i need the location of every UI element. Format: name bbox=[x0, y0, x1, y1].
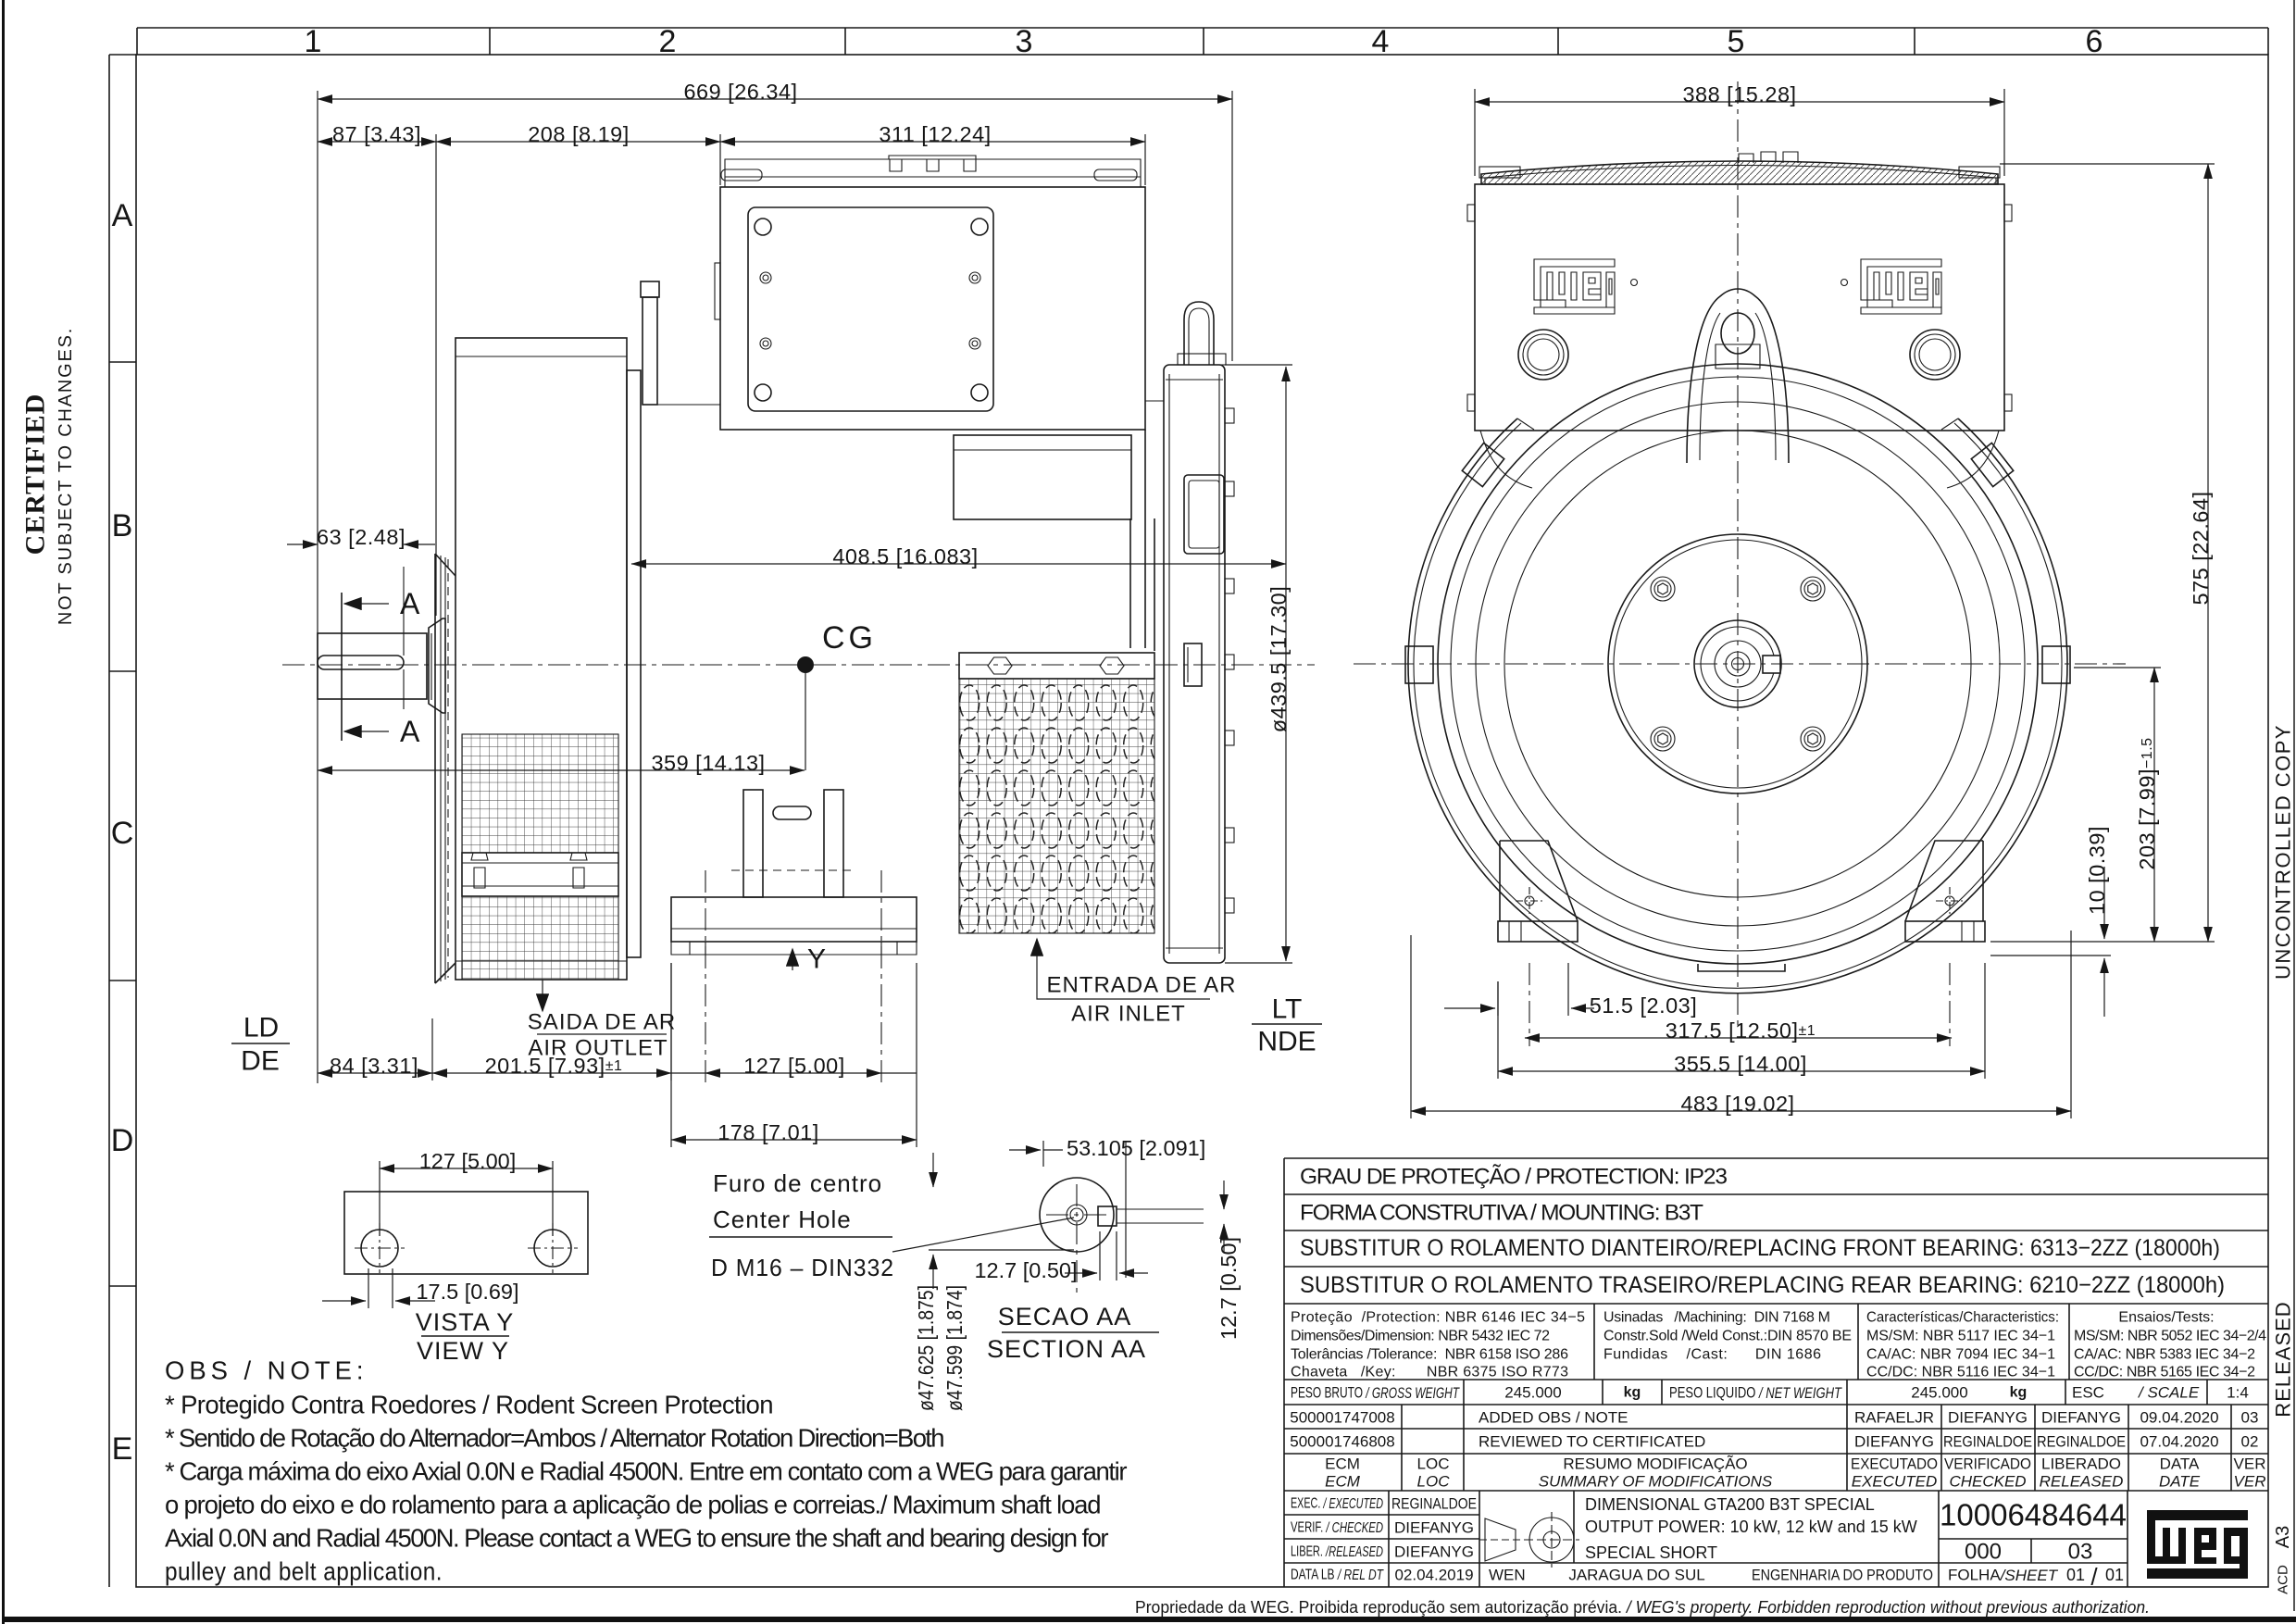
svg-text:A: A bbox=[400, 587, 420, 620]
svg-text:02: 02 bbox=[2241, 1433, 2259, 1451]
svg-text:MS/SM: NBR 5117 IEC 34−1: MS/SM: NBR 5117 IEC 34−1 bbox=[1866, 1329, 2055, 1344]
svg-text:REVIEWED TO CERTIFICATED: REVIEWED TO CERTIFICATED bbox=[1479, 1433, 1705, 1451]
svg-text:408.5 [16.083]: 408.5 [16.083] bbox=[832, 544, 978, 568]
svg-text:AIR INLET: AIR INLET bbox=[1071, 1002, 1186, 1027]
svg-text:Tolerâncias /Tolerance: NBR 6: Tolerâncias /Tolerance: NBR 6158 ISO 286 bbox=[1291, 1347, 1568, 1363]
svg-text:Ensaios/Tests:: Ensaios/Tests: bbox=[2118, 1310, 2214, 1326]
svg-text:355.5 [14.00]: 355.5 [14.00] bbox=[1674, 1052, 1807, 1076]
svg-text:84 [3.31]: 84 [3.31] bbox=[330, 1054, 418, 1078]
svg-text:87 [3.43]: 87 [3.43] bbox=[332, 122, 421, 146]
svg-text:WEN: WEN bbox=[1489, 1567, 1526, 1584]
svg-text:RELEASED: RELEASED bbox=[2272, 1301, 2295, 1417]
svg-text:02.04.2019: 02.04.2019 bbox=[1394, 1567, 1473, 1584]
svg-text:ø439.5 [17.30]: ø439.5 [17.30] bbox=[1267, 586, 1291, 733]
svg-text:669 [26.34]: 669 [26.34] bbox=[683, 80, 797, 104]
svg-text:Usinadas /Machining: DIN 71: Usinadas /Machining: DIN 7168 M bbox=[1603, 1310, 1830, 1326]
svg-text:03: 03 bbox=[2068, 1540, 2093, 1565]
svg-text:127 [5.00]: 127 [5.00] bbox=[743, 1054, 845, 1078]
svg-text:SECTION AA: SECTION AA bbox=[987, 1335, 1146, 1363]
svg-text:17.5 [0.69]: 17.5 [0.69] bbox=[416, 1280, 518, 1304]
svg-text:CA/AC: NBR 7094 IEC 34−1: CA/AC: NBR 7094 IEC 34−1 bbox=[1866, 1347, 2055, 1363]
svg-text:ø47.625 [1.875]: ø47.625 [1.875] bbox=[914, 1285, 938, 1411]
svg-text:ADDED OBS / NOTE: ADDED OBS / NOTE bbox=[1479, 1409, 1628, 1427]
svg-text:DE: DE bbox=[241, 1046, 280, 1077]
svg-text:Dimensões/Dimension: NBR 5432: Dimensões/Dimension: NBR 5432 IEC 72 bbox=[1291, 1329, 1550, 1344]
svg-text:CC/DC: NBR 5116 IEC 34−1: CC/DC: NBR 5116 IEC 34−1 bbox=[1866, 1365, 2055, 1380]
svg-text:LIBERADO: LIBERADO bbox=[2041, 1455, 2121, 1473]
svg-text:127 [5.00]: 127 [5.00] bbox=[419, 1149, 517, 1173]
svg-text:RESUMO MODIFICAÇÃO: RESUMO MODIFICAÇÃO bbox=[1563, 1455, 1747, 1473]
svg-text:Center Hole: Center Hole bbox=[713, 1206, 852, 1233]
svg-text:RAFAELJR: RAFAELJR bbox=[1854, 1409, 1934, 1427]
svg-text:MS/SM: NBR 5052 IEC 34−2/4: MS/SM: NBR 5052 IEC 34−2/4 bbox=[2074, 1329, 2266, 1344]
svg-text:LD: LD bbox=[243, 1013, 279, 1043]
svg-text:Y: Y bbox=[807, 944, 826, 975]
svg-text:51.5 [2.03]: 51.5 [2.03] bbox=[1590, 993, 1698, 1018]
svg-text:JARAGUA DO SUL: JARAGUA DO SUL bbox=[1568, 1567, 1704, 1584]
svg-text:201.5 [7.93]±1: 201.5 [7.93]±1 bbox=[485, 1054, 623, 1078]
svg-text:DIMENSIONAL GTA200 B3T SPECIAL: DIMENSIONAL GTA200 B3T SPECIAL bbox=[1585, 1495, 1875, 1514]
svg-text:VISTA Y: VISTA Y bbox=[416, 1308, 515, 1336]
svg-text:/: / bbox=[2090, 1563, 2098, 1591]
svg-text:CERTIFIED: CERTIFIED bbox=[20, 394, 51, 556]
svg-text:kg: kg bbox=[2010, 1385, 2028, 1401]
svg-text:FORMA CONSTRUTIVA / MOUNTING:: FORMA CONSTRUTIVA / MOUNTING: B3T bbox=[1300, 1201, 1703, 1226]
svg-text:ACD: ACD bbox=[2276, 1565, 2291, 1594]
svg-text:CC/DC: NBR 5165 IEC 34−2: CC/DC: NBR 5165 IEC 34−2 bbox=[2074, 1365, 2255, 1380]
svg-text:500001747008: 500001747008 bbox=[1290, 1409, 1394, 1427]
svg-text:DIEFANYG: DIEFANYG bbox=[1394, 1519, 1474, 1537]
svg-text:ESC: ESC bbox=[2072, 1384, 2104, 1402]
svg-text:PESO BRUTO / GROSS WEIGHT: PESO BRUTO / GROSS WEIGHT bbox=[1291, 1384, 1460, 1402]
svg-text:DATA: DATA bbox=[2160, 1455, 2200, 1473]
svg-text:REGINALDOE: REGINALDOE bbox=[1943, 1433, 2032, 1451]
svg-text:D M16 – DIN332: D M16 – DIN332 bbox=[711, 1254, 894, 1281]
svg-text:2: 2 bbox=[659, 24, 677, 59]
svg-text:DIEFANYG: DIEFANYG bbox=[1948, 1409, 2028, 1427]
svg-text:6: 6 bbox=[2086, 24, 2103, 59]
svg-text:RELEASED: RELEASED bbox=[2040, 1473, 2124, 1491]
svg-text:07.04.2020: 07.04.2020 bbox=[2140, 1433, 2218, 1451]
svg-text:o projeto do eixo e do rolamen: o projeto do eixo e do rolamento para a … bbox=[165, 1491, 1102, 1519]
svg-text:REGINALDOE: REGINALDOE bbox=[2037, 1433, 2126, 1451]
svg-text:/ SCALE: / SCALE bbox=[2138, 1384, 2200, 1402]
svg-text:PESO LIQUIDO / NET WEIGHT: PESO LIQUIDO / NET WEIGHT bbox=[1669, 1384, 1842, 1402]
svg-text:NDE: NDE bbox=[1257, 1027, 1316, 1057]
svg-text:kg: kg bbox=[1624, 1385, 1641, 1401]
svg-text:388 [15.28]: 388 [15.28] bbox=[1682, 82, 1796, 106]
svg-text:178 [7.01]: 178 [7.01] bbox=[717, 1120, 819, 1144]
svg-text:10006484644: 10006484644 bbox=[1940, 1498, 2127, 1532]
svg-text:CHECKED: CHECKED bbox=[1949, 1473, 2026, 1491]
svg-text:5: 5 bbox=[1728, 24, 1745, 59]
svg-text:4: 4 bbox=[1372, 24, 1390, 59]
svg-text:* Protegido Contra Roedores /: * Protegido Contra Roedores / Rodent Scr… bbox=[165, 1391, 774, 1419]
svg-text:SECAO AA: SECAO AA bbox=[998, 1303, 1132, 1330]
svg-text:SPECIAL SHORT: SPECIAL SHORT bbox=[1585, 1543, 1717, 1562]
svg-text:LT: LT bbox=[1272, 994, 1303, 1025]
svg-text:CG: CG bbox=[822, 620, 877, 656]
svg-text:E: E bbox=[112, 1431, 133, 1467]
svg-text:A: A bbox=[400, 715, 420, 748]
svg-text:EXEC. / EXECUTED: EXEC. / EXECUTED bbox=[1291, 1496, 1383, 1512]
svg-text:C: C bbox=[111, 816, 134, 851]
svg-text:ø47.599 [1.874]: ø47.599 [1.874] bbox=[942, 1285, 967, 1411]
svg-text:Axial 0.0N and Radial 4500N. P: Axial 0.0N and Radial 4500N. Please cont… bbox=[165, 1524, 1109, 1553]
svg-text:* Carga máxima do eixo Axial 0: * Carga máxima do eixo Axial 0.0N e Radi… bbox=[165, 1457, 1128, 1486]
svg-text:FOLHA/SHEET: FOLHA/SHEET bbox=[1948, 1567, 2059, 1584]
svg-text:D: D bbox=[111, 1123, 134, 1158]
svg-text:B: B bbox=[112, 508, 133, 543]
svg-text:SUBSTITUR O ROLAMENTO TRASEIRO: SUBSTITUR O ROLAMENTO TRASEIRO/REPLACING… bbox=[1300, 1272, 2225, 1298]
svg-text:000: 000 bbox=[1965, 1540, 2002, 1565]
svg-text:A3: A3 bbox=[2273, 1526, 2293, 1548]
svg-text:REGINALDOE: REGINALDOE bbox=[1391, 1495, 1477, 1513]
svg-text:LOC: LOC bbox=[1417, 1473, 1451, 1491]
svg-text:ECM: ECM bbox=[1325, 1473, 1361, 1491]
svg-text:Características/Characteristic: Características/Characteristics: bbox=[1866, 1310, 2059, 1326]
svg-text:SUMMARY OF MODIFICATIONS: SUMMARY OF MODIFICATIONS bbox=[1539, 1473, 1773, 1491]
svg-text:EXECUTED: EXECUTED bbox=[1852, 1473, 1938, 1491]
svg-text:* Sentido de Rotação do Altern: * Sentido de Rotação do Alternador=Ambos… bbox=[165, 1424, 945, 1453]
svg-text:359 [14.13]: 359 [14.13] bbox=[651, 751, 765, 775]
svg-text:53.105 [2.091]: 53.105 [2.091] bbox=[1067, 1136, 1205, 1160]
svg-text:ENTRADA DE AR: ENTRADA DE AR bbox=[1046, 973, 1236, 998]
svg-text:311 [12.24]: 311 [12.24] bbox=[879, 122, 991, 146]
svg-text:A: A bbox=[112, 198, 133, 233]
svg-text:12.7 [0.50]: 12.7 [0.50] bbox=[974, 1258, 1077, 1282]
svg-text:09.04.2020: 09.04.2020 bbox=[2140, 1409, 2218, 1427]
svg-text:Proteção /Protection: NBR 614: Proteção /Protection: NBR 6146 IEC 34−5 bbox=[1291, 1310, 1585, 1326]
svg-text:LIBER. /RELEASED: LIBER. /RELEASED bbox=[1291, 1544, 1383, 1560]
svg-text:208 [8.19]: 208 [8.19] bbox=[528, 122, 630, 146]
svg-text:01: 01 bbox=[2105, 1566, 2124, 1584]
svg-text:NOT SUBJECT TO CHANGES.: NOT SUBJECT TO CHANGES. bbox=[56, 327, 76, 625]
svg-text:UNCONTROLLED COPY: UNCONTROLLED COPY bbox=[2272, 724, 2295, 980]
svg-text:10 [0.39]: 10 [0.39] bbox=[2085, 826, 2109, 915]
svg-text:LOC: LOC bbox=[1417, 1455, 1450, 1473]
svg-text:575 [22.64]: 575 [22.64] bbox=[2189, 491, 2213, 605]
svg-text:DIEFANYG: DIEFANYG bbox=[1394, 1543, 1474, 1561]
svg-text:VIEW Y: VIEW Y bbox=[417, 1337, 509, 1365]
svg-text:DATA LB / REL DT: DATA LB / REL DT bbox=[1291, 1568, 1384, 1583]
svg-text:Propriedade da WEG. Proibida r: Propriedade da WEG. Proibida reprodução … bbox=[1135, 1597, 2150, 1617]
svg-text:63 [2.48]: 63 [2.48] bbox=[317, 525, 406, 549]
svg-text:317.5 [12.50]±1: 317.5 [12.50]±1 bbox=[1666, 1018, 1816, 1043]
svg-text:OUTPUT POWER: 10 kW, 12 kW and: OUTPUT POWER: 10 kW, 12 kW and 15 kW bbox=[1585, 1518, 1917, 1536]
svg-text:245.000: 245.000 bbox=[1911, 1384, 1967, 1402]
svg-text:VERIF. / CHECKED: VERIF. / CHECKED bbox=[1291, 1520, 1383, 1536]
svg-text:500001746808: 500001746808 bbox=[1290, 1433, 1394, 1451]
svg-text:3: 3 bbox=[1016, 24, 1033, 59]
svg-text:DIEFANYG: DIEFANYG bbox=[2041, 1409, 2121, 1427]
svg-text:SAIDA DE AR: SAIDA DE AR bbox=[528, 1010, 676, 1035]
svg-text:Fundidas /Cast: DIN 16: Fundidas /Cast: DIN 1686 bbox=[1603, 1347, 1821, 1363]
svg-text:12.7 [0.50]: 12.7 [0.50] bbox=[1217, 1237, 1241, 1340]
svg-text:1:4: 1:4 bbox=[2227, 1384, 2249, 1402]
svg-text:DATE: DATE bbox=[2159, 1473, 2201, 1491]
svg-text:Chaveta /Key: NBR 6375: Chaveta /Key: NBR 6375 ISO R773 bbox=[1291, 1365, 1568, 1380]
svg-text:DIEFANYG: DIEFANYG bbox=[1854, 1433, 1934, 1451]
svg-text:Constr.Sold /Weld Const.:DIN 8: Constr.Sold /Weld Const.:DIN 8570 BE bbox=[1603, 1329, 1852, 1344]
svg-text:EXECUTADO: EXECUTADO bbox=[1851, 1455, 1938, 1473]
svg-text:01: 01 bbox=[2066, 1566, 2085, 1584]
svg-text:VERIFICADO: VERIFICADO bbox=[1944, 1455, 2031, 1473]
svg-text:Furo de centro: Furo de centro bbox=[713, 1169, 882, 1197]
svg-text:483 [19.02]: 483 [19.02] bbox=[1680, 1092, 1794, 1116]
svg-text:CA/AC: NBR 5383 IEC 34−2: CA/AC: NBR 5383 IEC 34−2 bbox=[2074, 1347, 2255, 1363]
svg-text:SUBSTITUR O ROLAMENTO DIANTEIR: SUBSTITUR O ROLAMENTO DIANTEIRO/REPLACIN… bbox=[1300, 1235, 2220, 1261]
svg-text:GRAU DE PROTEÇÃO / PROTECTION:: GRAU DE PROTEÇÃO / PROTECTION: IP23 bbox=[1300, 1165, 1728, 1190]
svg-text:245.000: 245.000 bbox=[1504, 1384, 1561, 1402]
svg-text:ENGENHARIA DO PRODUTO: ENGENHARIA DO PRODUTO bbox=[1752, 1567, 1933, 1584]
svg-text:ECM: ECM bbox=[1325, 1455, 1360, 1473]
svg-text:VER: VER bbox=[2234, 1473, 2266, 1491]
svg-text:1: 1 bbox=[305, 24, 322, 59]
svg-text:pulley and belt application.: pulley and belt application. bbox=[165, 1557, 443, 1586]
svg-text:VER: VER bbox=[2234, 1455, 2266, 1473]
svg-text:03: 03 bbox=[2241, 1409, 2259, 1427]
